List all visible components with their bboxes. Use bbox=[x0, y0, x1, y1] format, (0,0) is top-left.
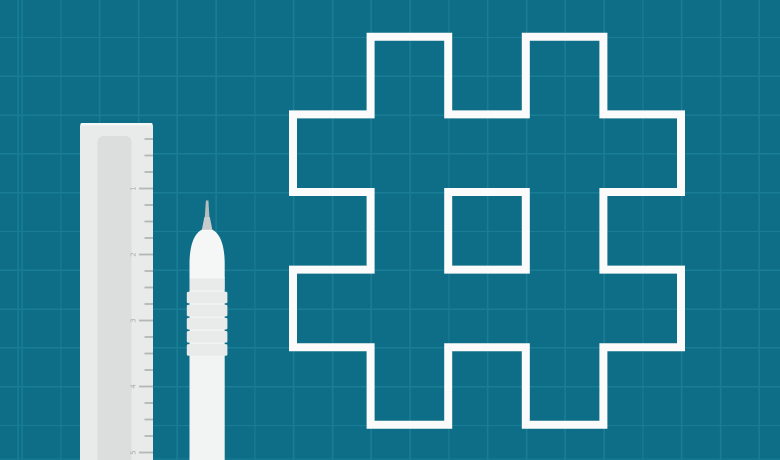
ruler-tick-minor bbox=[145, 287, 154, 289]
ruler-tick-minor bbox=[145, 435, 154, 437]
ruler-tick-major bbox=[139, 452, 153, 454]
pen-barrel bbox=[190, 277, 225, 460]
ruler-tick-minor bbox=[145, 270, 154, 272]
ruler-number: 1 bbox=[130, 186, 138, 190]
ruler-tick-minor bbox=[145, 336, 154, 338]
ruler-tick-minor bbox=[145, 419, 154, 421]
pen-grip-band bbox=[187, 292, 228, 304]
ruler-slot bbox=[98, 136, 132, 460]
scene-art: 12345 bbox=[0, 0, 780, 460]
ruler-number: 3 bbox=[130, 318, 138, 322]
pen-grip-band bbox=[187, 305, 228, 317]
pen-nib-dome bbox=[190, 230, 225, 279]
hashtag-icon bbox=[293, 37, 681, 425]
ruler-tick-minor bbox=[145, 204, 154, 206]
pen-needle-tip bbox=[205, 201, 210, 218]
ruler-number: 2 bbox=[130, 252, 138, 256]
ruler-tick-major bbox=[139, 320, 153, 322]
ruler-tick-major bbox=[139, 386, 153, 388]
ruler-tick-minor bbox=[145, 353, 154, 355]
blueprint-canvas: 12345 bbox=[0, 0, 780, 460]
ruler-tick-minor bbox=[145, 171, 154, 173]
hashtag-center-square bbox=[448, 192, 526, 270]
ruler: 12345 bbox=[80, 123, 153, 460]
ruler-tick-minor bbox=[145, 138, 154, 140]
drafting-pen bbox=[187, 201, 228, 460]
ruler-tick-major bbox=[139, 188, 153, 190]
ruler-number: 4 bbox=[130, 384, 138, 389]
hashtag-outline bbox=[293, 37, 681, 425]
pen-grip-band bbox=[187, 318, 228, 330]
pen-grip-band bbox=[187, 331, 228, 343]
ruler-tick-minor bbox=[145, 237, 154, 239]
ruler-tick-minor bbox=[145, 303, 154, 305]
pen-cone bbox=[202, 217, 213, 230]
pen-grip-band bbox=[187, 344, 228, 356]
pen-grip-band bbox=[190, 279, 225, 291]
ruler-tick-minor bbox=[145, 221, 154, 223]
ruler-tick-minor bbox=[145, 369, 154, 371]
ruler-tick-minor bbox=[145, 155, 154, 157]
ruler-number: 5 bbox=[130, 450, 138, 454]
ruler-tick-minor bbox=[145, 402, 154, 404]
ruler-tick-major bbox=[139, 254, 153, 256]
ruler-top-highlight bbox=[81, 123, 153, 125]
